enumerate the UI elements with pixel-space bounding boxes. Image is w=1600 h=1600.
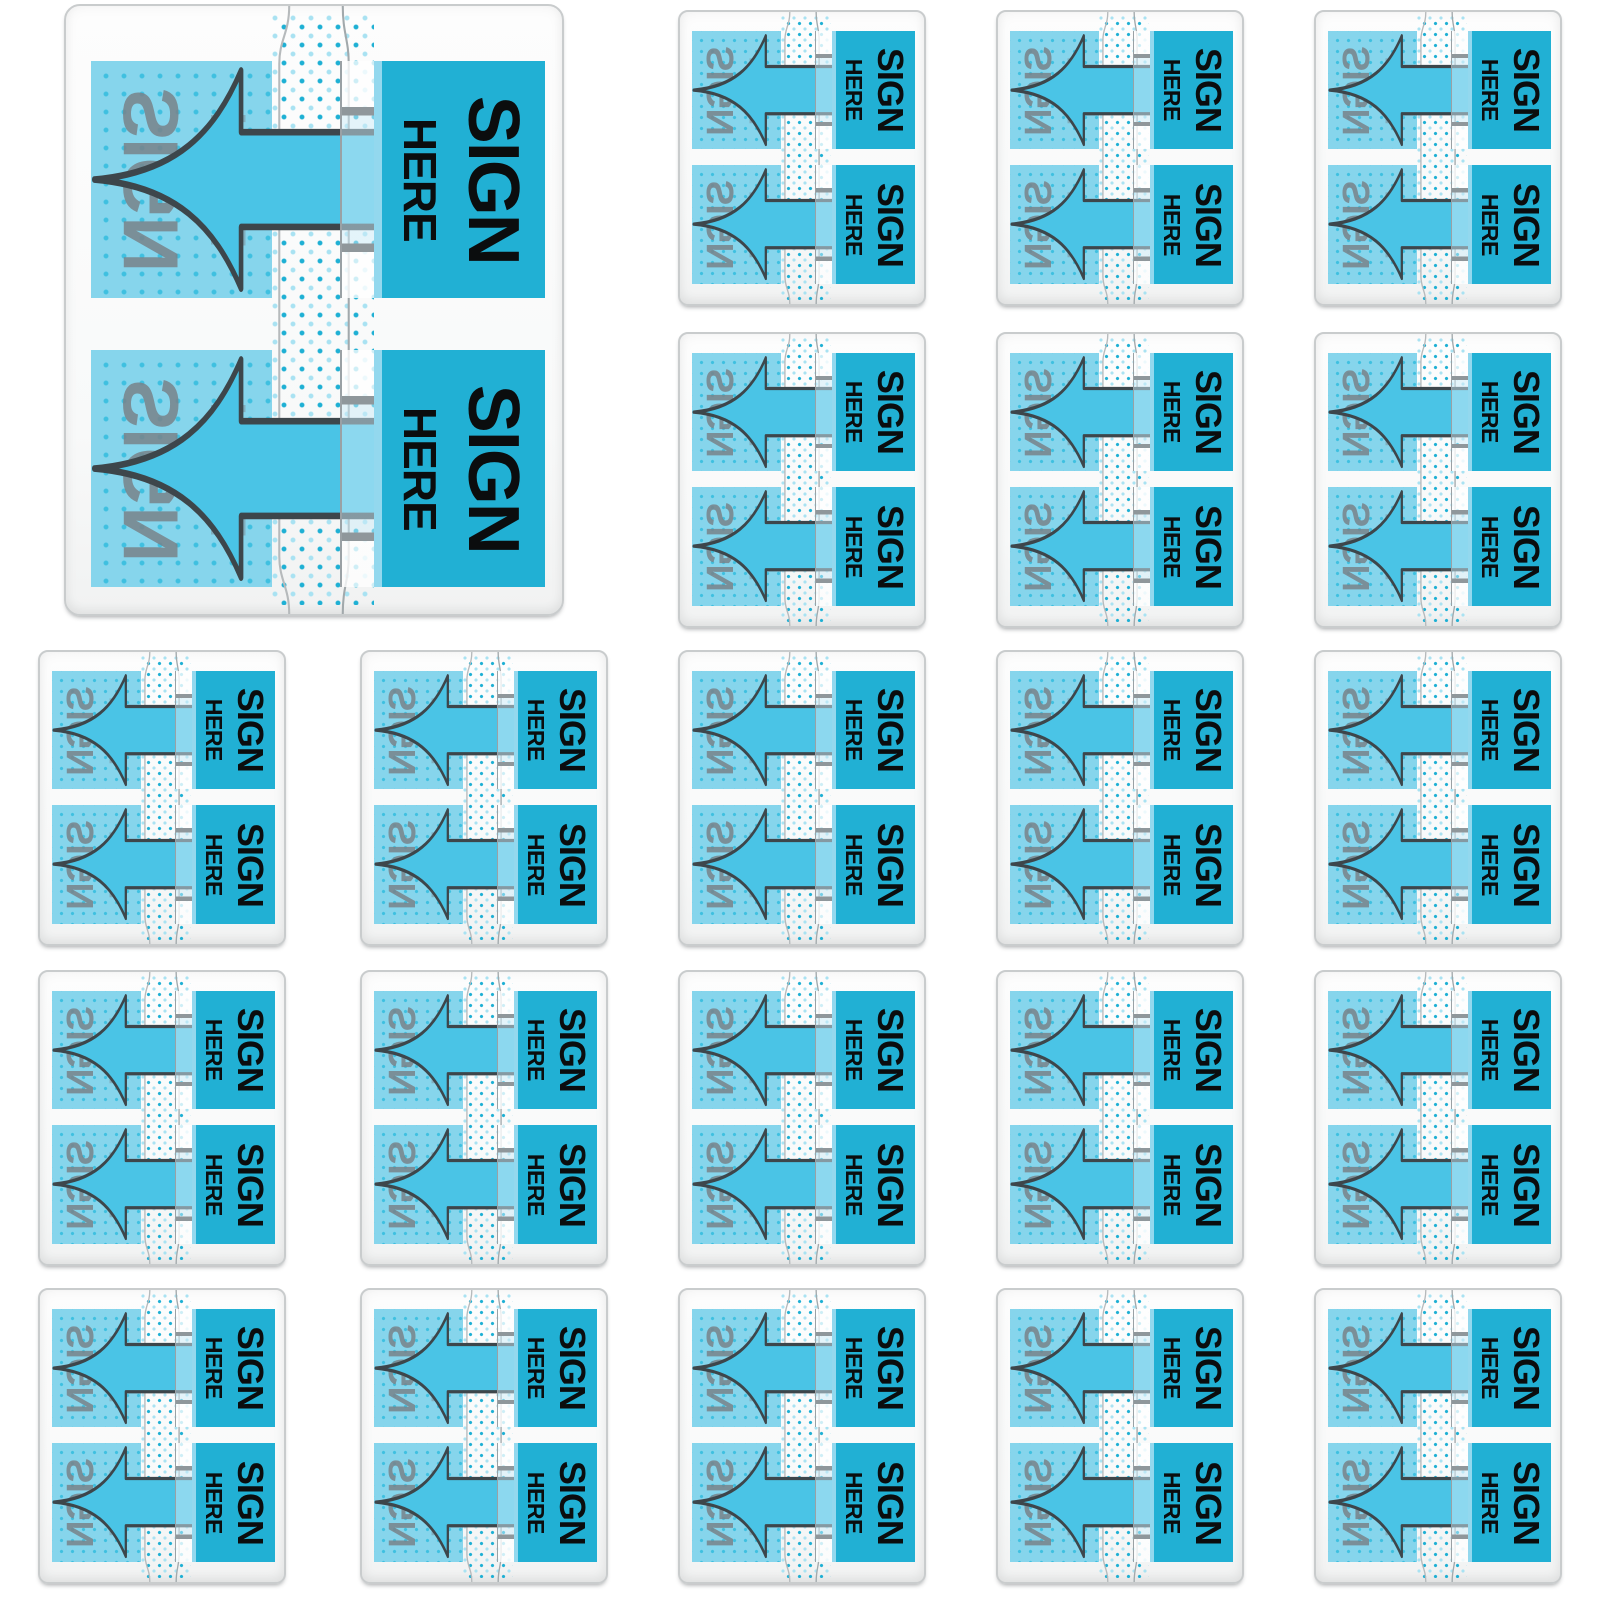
tab-sign-label: SIGN <box>227 1460 272 1544</box>
dispenser-slot <box>815 805 832 923</box>
sign-here-flag: SIGN HERE SIGN HERE <box>1328 1125 1551 1243</box>
tab-sign-label: SIGN <box>867 370 912 454</box>
flag-dispenser: SIGN HERE SIGN HERE SIGN <box>996 332 1244 628</box>
tab-sign-label: SIGN <box>1185 504 1230 588</box>
sign-here-arrow-icon <box>52 991 192 1109</box>
dispenser-slot <box>497 1125 514 1243</box>
tab-here-label: HERE <box>521 1142 550 1226</box>
sign-here-arrow-icon <box>1328 1443 1468 1561</box>
sign-here-tab: SIGN HERE <box>1150 487 1234 605</box>
dispenser-slot <box>497 805 514 923</box>
sign-here-flag: SIGN HERE SIGN HERE <box>692 991 915 1109</box>
tab-here-label: HERE <box>199 1460 228 1544</box>
dispenser-slot <box>1451 991 1468 1109</box>
sign-here-flag: SIGN HERE SIGN HERE <box>1010 31 1233 149</box>
tab-here-label: HERE <box>839 1460 868 1544</box>
sign-here-arrow-icon <box>1010 991 1150 1109</box>
flag-dispenser: SIGN HERE SIGN HERE SIGN <box>678 10 926 306</box>
sign-here-arrow-icon <box>692 805 832 923</box>
dispenser-slot <box>1451 1443 1468 1561</box>
sign-here-arrow-icon <box>91 350 375 587</box>
sign-here-arrow-icon <box>91 61 375 298</box>
tab-sign-label: SIGN <box>227 822 272 906</box>
sign-here-tab: SIGN HERE <box>1468 1443 1552 1561</box>
dispenser-slot <box>1451 805 1468 923</box>
sign-here-arrow-icon <box>1010 487 1150 605</box>
tab-sign-label: SIGN <box>867 504 912 588</box>
sign-here-arrow-icon <box>52 1443 192 1561</box>
tab-here-label: HERE <box>839 1326 868 1410</box>
dispenser-slot <box>1451 165 1468 283</box>
dispenser-slot <box>1133 487 1150 605</box>
sign-here-flag: SIGN HERE SIGN HERE <box>1328 805 1551 923</box>
dispenser-slot <box>1133 165 1150 283</box>
tab-here-label: HERE <box>199 1008 228 1092</box>
sign-here-arrow-icon <box>1328 165 1468 283</box>
sign-here-arrow-icon <box>1010 165 1150 283</box>
tab-here-label: HERE <box>839 688 868 772</box>
dispenser-slot <box>497 1309 514 1427</box>
tab-sign-label: SIGN <box>867 1460 912 1544</box>
dispenser-slot <box>1133 1309 1150 1427</box>
flag-dispenser: SIGN HERE SIGN HERE SIGN <box>360 1288 608 1584</box>
tab-sign-label: SIGN <box>549 1460 594 1544</box>
dispenser-slot <box>175 805 192 923</box>
dispenser-slot <box>497 671 514 789</box>
tab-here-label: HERE <box>199 822 228 906</box>
tab-here-label: HERE <box>1475 48 1504 132</box>
flag-dispenser: SIGN HERE SIGN HERE SIGN <box>996 970 1244 1266</box>
sign-here-arrow-icon <box>374 1125 514 1243</box>
sign-here-flag: SIGN HERE SIGN HERE <box>91 61 545 298</box>
flag-dispenser: SIGN HERE SIGN HERE SIGN <box>38 650 286 946</box>
sign-here-tab: SIGN HERE <box>192 991 276 1109</box>
sign-here-arrow-icon <box>692 1125 832 1243</box>
dispenser-slot <box>340 61 374 298</box>
sign-here-flag: SIGN HERE SIGN HERE <box>692 353 915 471</box>
tab-sign-label: SIGN <box>1503 1142 1548 1226</box>
sign-here-flag: SIGN HERE SIGN HERE <box>52 1443 275 1561</box>
tab-sign-label: SIGN <box>1185 1326 1230 1410</box>
sign-here-arrow-icon <box>1010 1125 1150 1243</box>
dispenser-slot <box>1133 1443 1150 1561</box>
sign-here-arrow-icon <box>1010 353 1150 471</box>
tab-here-label: HERE <box>199 1326 228 1410</box>
sign-here-arrow-icon <box>52 805 192 923</box>
sign-here-arrow-icon <box>52 1309 192 1427</box>
sign-here-tab: SIGN HERE <box>832 1443 916 1561</box>
tab-sign-label: SIGN <box>1503 370 1548 454</box>
tab-here-label: HERE <box>1157 182 1186 266</box>
sign-here-flag: SIGN HERE SIGN HERE <box>52 991 275 1109</box>
sign-here-flag: SIGN HERE SIGN HERE <box>374 1125 597 1243</box>
dispenser-slot <box>1133 671 1150 789</box>
tab-sign-label: SIGN <box>867 1326 912 1410</box>
sign-here-flag: SIGN HERE SIGN HERE <box>374 671 597 789</box>
sign-here-flag: SIGN HERE SIGN HERE <box>692 805 915 923</box>
sign-here-flag: SIGN HERE SIGN HERE <box>374 1443 597 1561</box>
tab-sign-label: SIGN <box>1185 182 1230 266</box>
dispenser-slot <box>1451 1309 1468 1427</box>
sign-here-flag: SIGN HERE SIGN HERE <box>692 165 915 283</box>
tab-here-label: HERE <box>1475 182 1504 266</box>
sign-here-flag: SIGN HERE SIGN HERE <box>52 1125 275 1243</box>
sign-here-tab: SIGN HERE <box>514 1125 598 1243</box>
flag-dispenser: SIGN HERE SIGN HERE SIGN <box>64 4 564 616</box>
sign-here-flag: SIGN HERE SIGN HERE <box>1328 991 1551 1109</box>
flag-dispenser: SIGN HERE SIGN HERE SIGN <box>996 10 1244 306</box>
tab-sign-label: SIGN <box>549 1326 594 1410</box>
dispenser-slot <box>175 1125 192 1243</box>
flag-dispenser: SIGN HERE SIGN HERE SIGN <box>1314 650 1562 946</box>
tab-sign-label: SIGN <box>867 1142 912 1226</box>
sign-here-flag: SIGN HERE SIGN HERE <box>374 805 597 923</box>
sign-here-flag: SIGN HERE SIGN HERE <box>374 1309 597 1427</box>
tab-sign-label: SIGN <box>549 822 594 906</box>
tab-sign-label: SIGN <box>1185 48 1230 132</box>
tab-here-label: HERE <box>521 1460 550 1544</box>
sign-here-arrow-icon <box>692 487 832 605</box>
sign-here-tab: SIGN HERE <box>192 805 276 923</box>
tab-here-label: HERE <box>199 1142 228 1226</box>
tab-here-label: HERE <box>1157 1142 1186 1226</box>
tab-sign-label: SIGN <box>1503 48 1548 132</box>
sign-here-tab: SIGN HERE <box>1150 671 1234 789</box>
tab-sign-label: SIGN <box>1185 822 1230 906</box>
sign-here-tab: SIGN HERE <box>1468 31 1552 149</box>
sign-here-flag: SIGN HERE SIGN HERE <box>1328 487 1551 605</box>
sign-here-arrow-icon <box>692 1309 832 1427</box>
sign-here-tab: SIGN HERE <box>192 1125 276 1243</box>
tab-sign-label: SIGN <box>447 95 537 263</box>
dispenser-slot <box>815 353 832 471</box>
sign-here-tab: SIGN HERE <box>832 1125 916 1243</box>
sign-here-arrow-icon <box>1010 31 1150 149</box>
sign-here-flag: SIGN HERE SIGN HERE <box>1328 165 1551 283</box>
sign-here-tab: SIGN HERE <box>832 805 916 923</box>
tab-sign-label: SIGN <box>227 1142 272 1226</box>
sign-here-flag: SIGN HERE SIGN HERE <box>692 31 915 149</box>
dispenser-slot <box>1451 353 1468 471</box>
sign-here-arrow-icon <box>692 31 832 149</box>
sign-here-tab: SIGN HERE <box>514 805 598 923</box>
tab-here-label: HERE <box>1475 504 1504 588</box>
tab-sign-label: SIGN <box>1503 1326 1548 1410</box>
tab-here-label: HERE <box>521 1326 550 1410</box>
sign-here-arrow-icon <box>374 1309 514 1427</box>
tab-here-label: HERE <box>521 822 550 906</box>
sign-here-tab: SIGN HERE <box>1468 1309 1552 1427</box>
sign-here-tab: SIGN HERE <box>514 991 598 1109</box>
dispenser-slot <box>815 31 832 149</box>
sign-here-tab: SIGN HERE <box>832 991 916 1109</box>
tab-here-label: HERE <box>839 182 868 266</box>
sign-here-tab: SIGN HERE <box>514 1309 598 1427</box>
tab-sign-label: SIGN <box>1503 1460 1548 1544</box>
sign-here-arrow-icon <box>692 991 832 1109</box>
sign-here-tab: SIGN HERE <box>832 487 916 605</box>
tab-here-label: HERE <box>1475 1008 1504 1092</box>
flag-dispenser: SIGN HERE SIGN HERE SIGN <box>360 970 608 1266</box>
tab-here-label: HERE <box>1157 1326 1186 1410</box>
tab-here-label: HERE <box>199 688 228 772</box>
sign-here-tab: SIGN HERE <box>1468 991 1552 1109</box>
sign-here-arrow-icon <box>374 1443 514 1561</box>
sign-here-tab: SIGN HERE <box>192 1309 276 1427</box>
sign-here-flag: SIGN HERE SIGN HERE <box>692 1309 915 1427</box>
tab-sign-label: SIGN <box>447 385 537 553</box>
tab-sign-label: SIGN <box>549 1142 594 1226</box>
dispenser-slot <box>815 1443 832 1561</box>
flag-dispenser: SIGN HERE SIGN HERE SIGN <box>678 650 926 946</box>
sign-here-arrow-icon <box>1328 353 1468 471</box>
flag-dispenser: SIGN HERE SIGN HERE SIGN <box>38 970 286 1266</box>
dispenser-slot <box>340 350 374 587</box>
tab-here-label: HERE <box>1475 822 1504 906</box>
tab-here-label: HERE <box>839 822 868 906</box>
sign-here-arrow-icon <box>1328 805 1468 923</box>
sign-here-flag: SIGN HERE SIGN HERE <box>692 671 915 789</box>
dispenser-slot <box>1133 805 1150 923</box>
dispenser-slot <box>815 1309 832 1427</box>
sign-here-flag: SIGN HERE SIGN HERE <box>374 991 597 1109</box>
flag-dispenser: SIGN HERE SIGN HERE SIGN <box>1314 1288 1562 1584</box>
sign-here-arrow-icon <box>374 671 514 789</box>
sign-here-tab: SIGN HERE <box>1150 31 1234 149</box>
sign-here-tab: SIGN HERE <box>832 1309 916 1427</box>
tab-sign-label: SIGN <box>1503 504 1548 588</box>
flag-dispenser: SIGN HERE SIGN HERE SIGN <box>678 1288 926 1584</box>
sign-here-flag: SIGN HERE SIGN HERE <box>91 350 545 587</box>
sign-here-tab: SIGN HERE <box>832 671 916 789</box>
sign-here-flag: SIGN HERE SIGN HERE <box>1328 31 1551 149</box>
sign-here-flag: SIGN HERE SIGN HERE <box>1010 1443 1233 1561</box>
sign-here-arrow-icon <box>52 671 192 789</box>
sign-here-flag: SIGN HERE SIGN HERE <box>1328 1309 1551 1427</box>
tab-here-label: HERE <box>521 1008 550 1092</box>
sign-here-flag: SIGN HERE SIGN HERE <box>1010 805 1233 923</box>
tab-sign-label: SIGN <box>227 688 272 772</box>
flag-dispenser: SIGN HERE SIGN HERE SIGN <box>360 650 608 946</box>
tab-sign-label: SIGN <box>227 1008 272 1092</box>
tab-here-label: HERE <box>1157 1008 1186 1092</box>
sign-here-tab: SIGN HERE <box>1150 805 1234 923</box>
sign-here-flag: SIGN HERE SIGN HERE <box>52 1309 275 1427</box>
sign-here-tab: SIGN HERE <box>832 31 916 149</box>
dispenser-slot <box>175 671 192 789</box>
dispenser-slot <box>1451 487 1468 605</box>
tab-here-label: HERE <box>839 48 868 132</box>
tab-sign-label: SIGN <box>867 48 912 132</box>
flag-dispenser: SIGN HERE SIGN HERE SIGN <box>996 650 1244 946</box>
tab-here-label: HERE <box>1475 1460 1504 1544</box>
sign-here-tab: SIGN HERE <box>1468 487 1552 605</box>
dispenser-slot <box>175 991 192 1109</box>
sign-here-flag: SIGN HERE SIGN HERE <box>692 1443 915 1561</box>
sign-here-arrow-icon <box>1328 487 1468 605</box>
sign-here-tab: SIGN HERE <box>374 350 544 587</box>
sign-here-tab: SIGN HERE <box>1468 671 1552 789</box>
sign-here-tab: SIGN HERE <box>1150 991 1234 1109</box>
sign-here-flag: SIGN HERE SIGN HERE <box>52 671 275 789</box>
tab-sign-label: SIGN <box>227 1326 272 1410</box>
tab-sign-label: SIGN <box>1503 688 1548 772</box>
sign-here-tab: SIGN HERE <box>1468 353 1552 471</box>
sign-here-arrow-icon <box>1010 1443 1150 1561</box>
sign-here-arrow-icon <box>1328 991 1468 1109</box>
flag-dispenser: SIGN HERE SIGN HERE SIGN <box>38 1288 286 1584</box>
sign-here-arrow-icon <box>1328 1309 1468 1427</box>
product-collage: SIGN HERE SIGN HERE SIGN <box>0 0 1600 1600</box>
tab-here-label: HERE <box>390 95 448 263</box>
sign-here-tab: SIGN HERE <box>1468 165 1552 283</box>
sign-here-tab: SIGN HERE <box>514 1443 598 1561</box>
sign-here-tab: SIGN HERE <box>192 671 276 789</box>
tab-sign-label: SIGN <box>549 1008 594 1092</box>
tab-here-label: HERE <box>1157 688 1186 772</box>
dispenser-slot <box>1451 31 1468 149</box>
sign-here-flag: SIGN HERE SIGN HERE <box>1328 353 1551 471</box>
tab-here-label: HERE <box>839 1142 868 1226</box>
sign-here-arrow-icon <box>1010 1309 1150 1427</box>
sign-here-arrow-icon <box>52 1125 192 1243</box>
sign-here-tab: SIGN HERE <box>192 1443 276 1561</box>
sign-here-tab: SIGN HERE <box>1468 1125 1552 1243</box>
tab-sign-label: SIGN <box>1503 182 1548 266</box>
sign-here-tab: SIGN HERE <box>832 165 916 283</box>
tab-sign-label: SIGN <box>867 688 912 772</box>
sign-here-arrow-icon <box>692 165 832 283</box>
sign-here-tab: SIGN HERE <box>1150 1443 1234 1561</box>
sign-here-arrow-icon <box>692 353 832 471</box>
sign-here-flag: SIGN HERE SIGN HERE <box>1010 1125 1233 1243</box>
flag-dispenser: SIGN HERE SIGN HERE SIGN <box>1314 970 1562 1266</box>
sign-here-arrow-icon <box>1328 1125 1468 1243</box>
sign-here-flag: SIGN HERE SIGN HERE <box>1010 1309 1233 1427</box>
sign-here-tab: SIGN HERE <box>1468 805 1552 923</box>
tab-here-label: HERE <box>1157 822 1186 906</box>
dispenser-slot <box>815 671 832 789</box>
sign-here-tab: SIGN HERE <box>1150 353 1234 471</box>
tab-here-label: HERE <box>839 1008 868 1092</box>
dispenser-slot <box>1451 671 1468 789</box>
flag-dispenser: SIGN HERE SIGN HERE SIGN <box>1314 332 1562 628</box>
sign-here-arrow-icon <box>692 671 832 789</box>
dispenser-slot <box>497 1443 514 1561</box>
sign-here-flag: SIGN HERE SIGN HERE <box>1010 671 1233 789</box>
tab-here-label: HERE <box>1475 688 1504 772</box>
tab-sign-label: SIGN <box>1185 1460 1230 1544</box>
sign-here-tab: SIGN HERE <box>514 671 598 789</box>
dispenser-slot <box>497 991 514 1109</box>
tab-sign-label: SIGN <box>1185 1142 1230 1226</box>
sign-here-tab: SIGN HERE <box>374 61 544 298</box>
sign-here-arrow-icon <box>1328 671 1468 789</box>
tab-sign-label: SIGN <box>1185 688 1230 772</box>
dispenser-slot <box>815 165 832 283</box>
sign-here-flag: SIGN HERE SIGN HERE <box>692 487 915 605</box>
tab-here-label: HERE <box>839 504 868 588</box>
tab-here-label: HERE <box>1157 48 1186 132</box>
tab-here-label: HERE <box>1157 370 1186 454</box>
tab-sign-label: SIGN <box>867 182 912 266</box>
sign-here-arrow-icon <box>1010 805 1150 923</box>
sign-here-tab: SIGN HERE <box>832 353 916 471</box>
sign-here-arrow-icon <box>1328 31 1468 149</box>
tab-sign-label: SIGN <box>549 688 594 772</box>
sign-here-flag: SIGN HERE SIGN HERE <box>1010 487 1233 605</box>
dispenser-slot <box>1133 1125 1150 1243</box>
sign-here-arrow-icon <box>374 805 514 923</box>
tab-here-label: HERE <box>1475 370 1504 454</box>
sign-here-flag: SIGN HERE SIGN HERE <box>1010 165 1233 283</box>
tab-here-label: HERE <box>1157 504 1186 588</box>
flag-dispenser: SIGN HERE SIGN HERE SIGN <box>678 970 926 1266</box>
tab-here-label: HERE <box>521 688 550 772</box>
sign-here-flag: SIGN HERE SIGN HERE <box>1010 353 1233 471</box>
sign-here-tab: SIGN HERE <box>1150 1125 1234 1243</box>
dispenser-slot <box>1133 991 1150 1109</box>
flag-dispenser: SIGN HERE SIGN HERE SIGN <box>996 1288 1244 1584</box>
dispenser-slot <box>175 1309 192 1427</box>
sign-here-arrow-icon <box>1010 671 1150 789</box>
tab-here-label: HERE <box>1475 1142 1504 1226</box>
dispenser-slot <box>815 1125 832 1243</box>
sign-here-flag: SIGN HERE SIGN HERE <box>52 805 275 923</box>
dispenser-slot <box>1133 31 1150 149</box>
tab-here-label: HERE <box>1157 1460 1186 1544</box>
tab-sign-label: SIGN <box>1503 822 1548 906</box>
sign-here-flag: SIGN HERE SIGN HERE <box>1328 671 1551 789</box>
sign-here-tab: SIGN HERE <box>1150 165 1234 283</box>
dispenser-slot <box>1451 1125 1468 1243</box>
flag-dispenser: SIGN HERE SIGN HERE SIGN <box>1314 10 1562 306</box>
dispenser-slot <box>815 487 832 605</box>
tab-sign-label: SIGN <box>867 822 912 906</box>
tab-here-label: HERE <box>390 385 448 553</box>
sign-here-arrow-icon <box>692 1443 832 1561</box>
tab-here-label: HERE <box>839 370 868 454</box>
tab-sign-label: SIGN <box>1503 1008 1548 1092</box>
tab-sign-label: SIGN <box>867 1008 912 1092</box>
sign-here-tab: SIGN HERE <box>1150 1309 1234 1427</box>
dispenser-slot <box>175 1443 192 1561</box>
tab-sign-label: SIGN <box>1185 1008 1230 1092</box>
tab-sign-label: SIGN <box>1185 370 1230 454</box>
sign-here-flag: SIGN HERE SIGN HERE <box>1328 1443 1551 1561</box>
flag-dispenser: SIGN HERE SIGN HERE SIGN <box>678 332 926 628</box>
dispenser-slot <box>815 991 832 1109</box>
sign-here-arrow-icon <box>374 991 514 1109</box>
sign-here-flag: SIGN HERE SIGN HERE <box>692 1125 915 1243</box>
dispenser-slot <box>1133 353 1150 471</box>
sign-here-flag: SIGN HERE SIGN HERE <box>1010 991 1233 1109</box>
tab-here-label: HERE <box>1475 1326 1504 1410</box>
